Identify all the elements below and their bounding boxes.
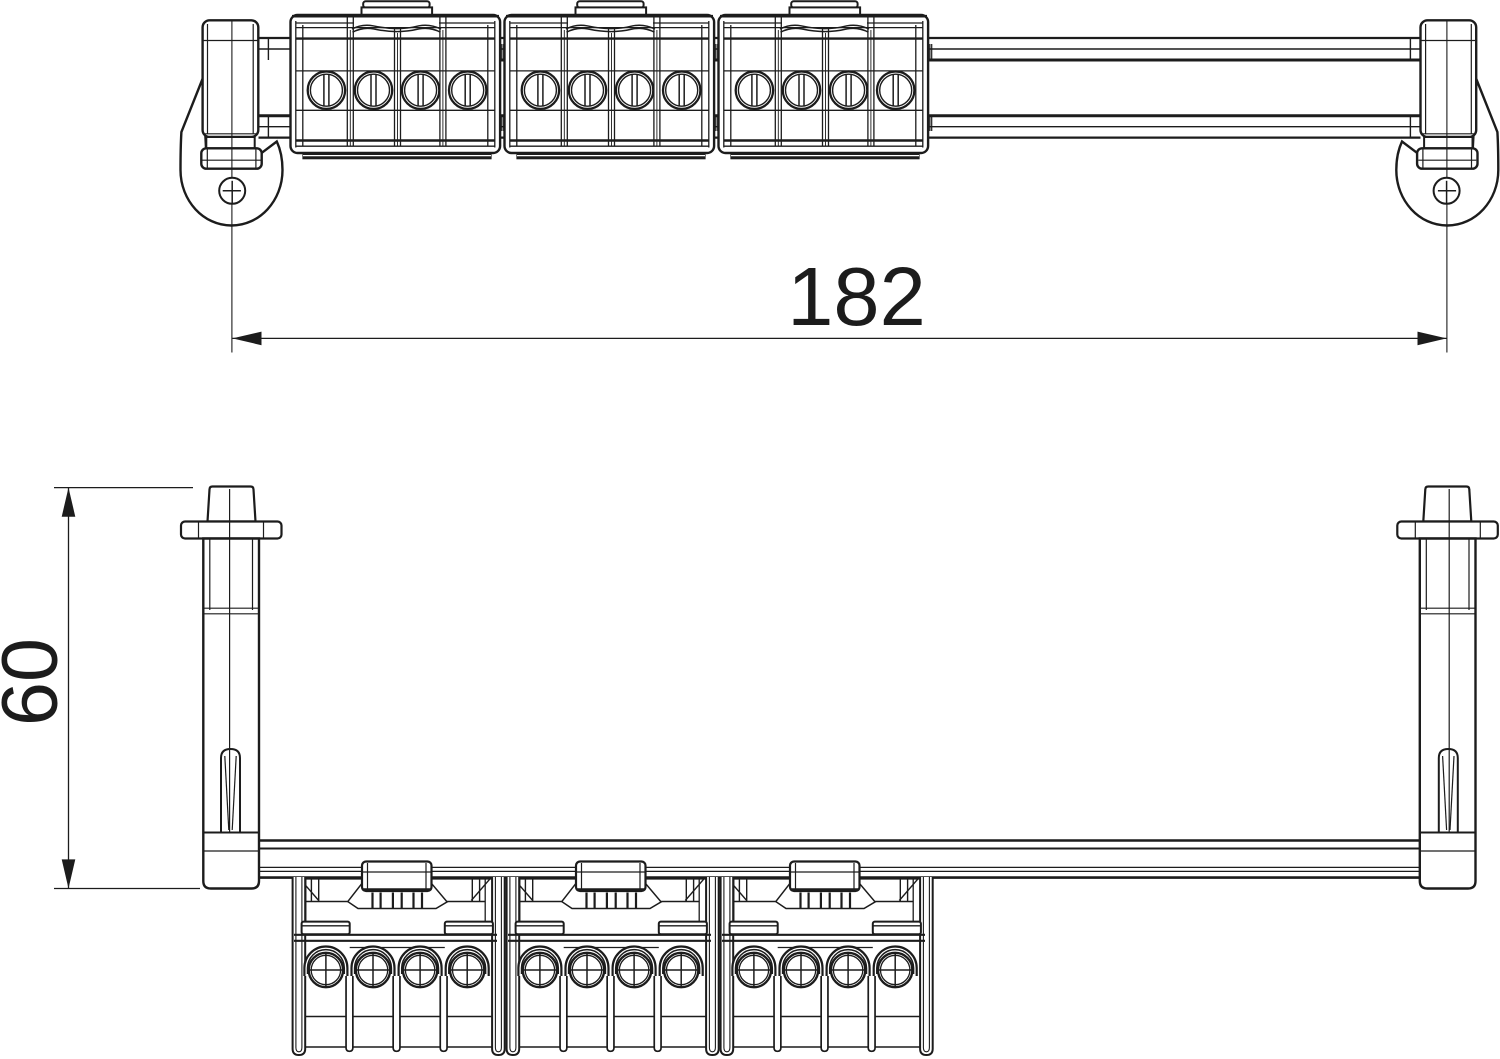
svg-text:60: 60 (0, 638, 74, 726)
svg-text:182: 182 (787, 250, 925, 343)
